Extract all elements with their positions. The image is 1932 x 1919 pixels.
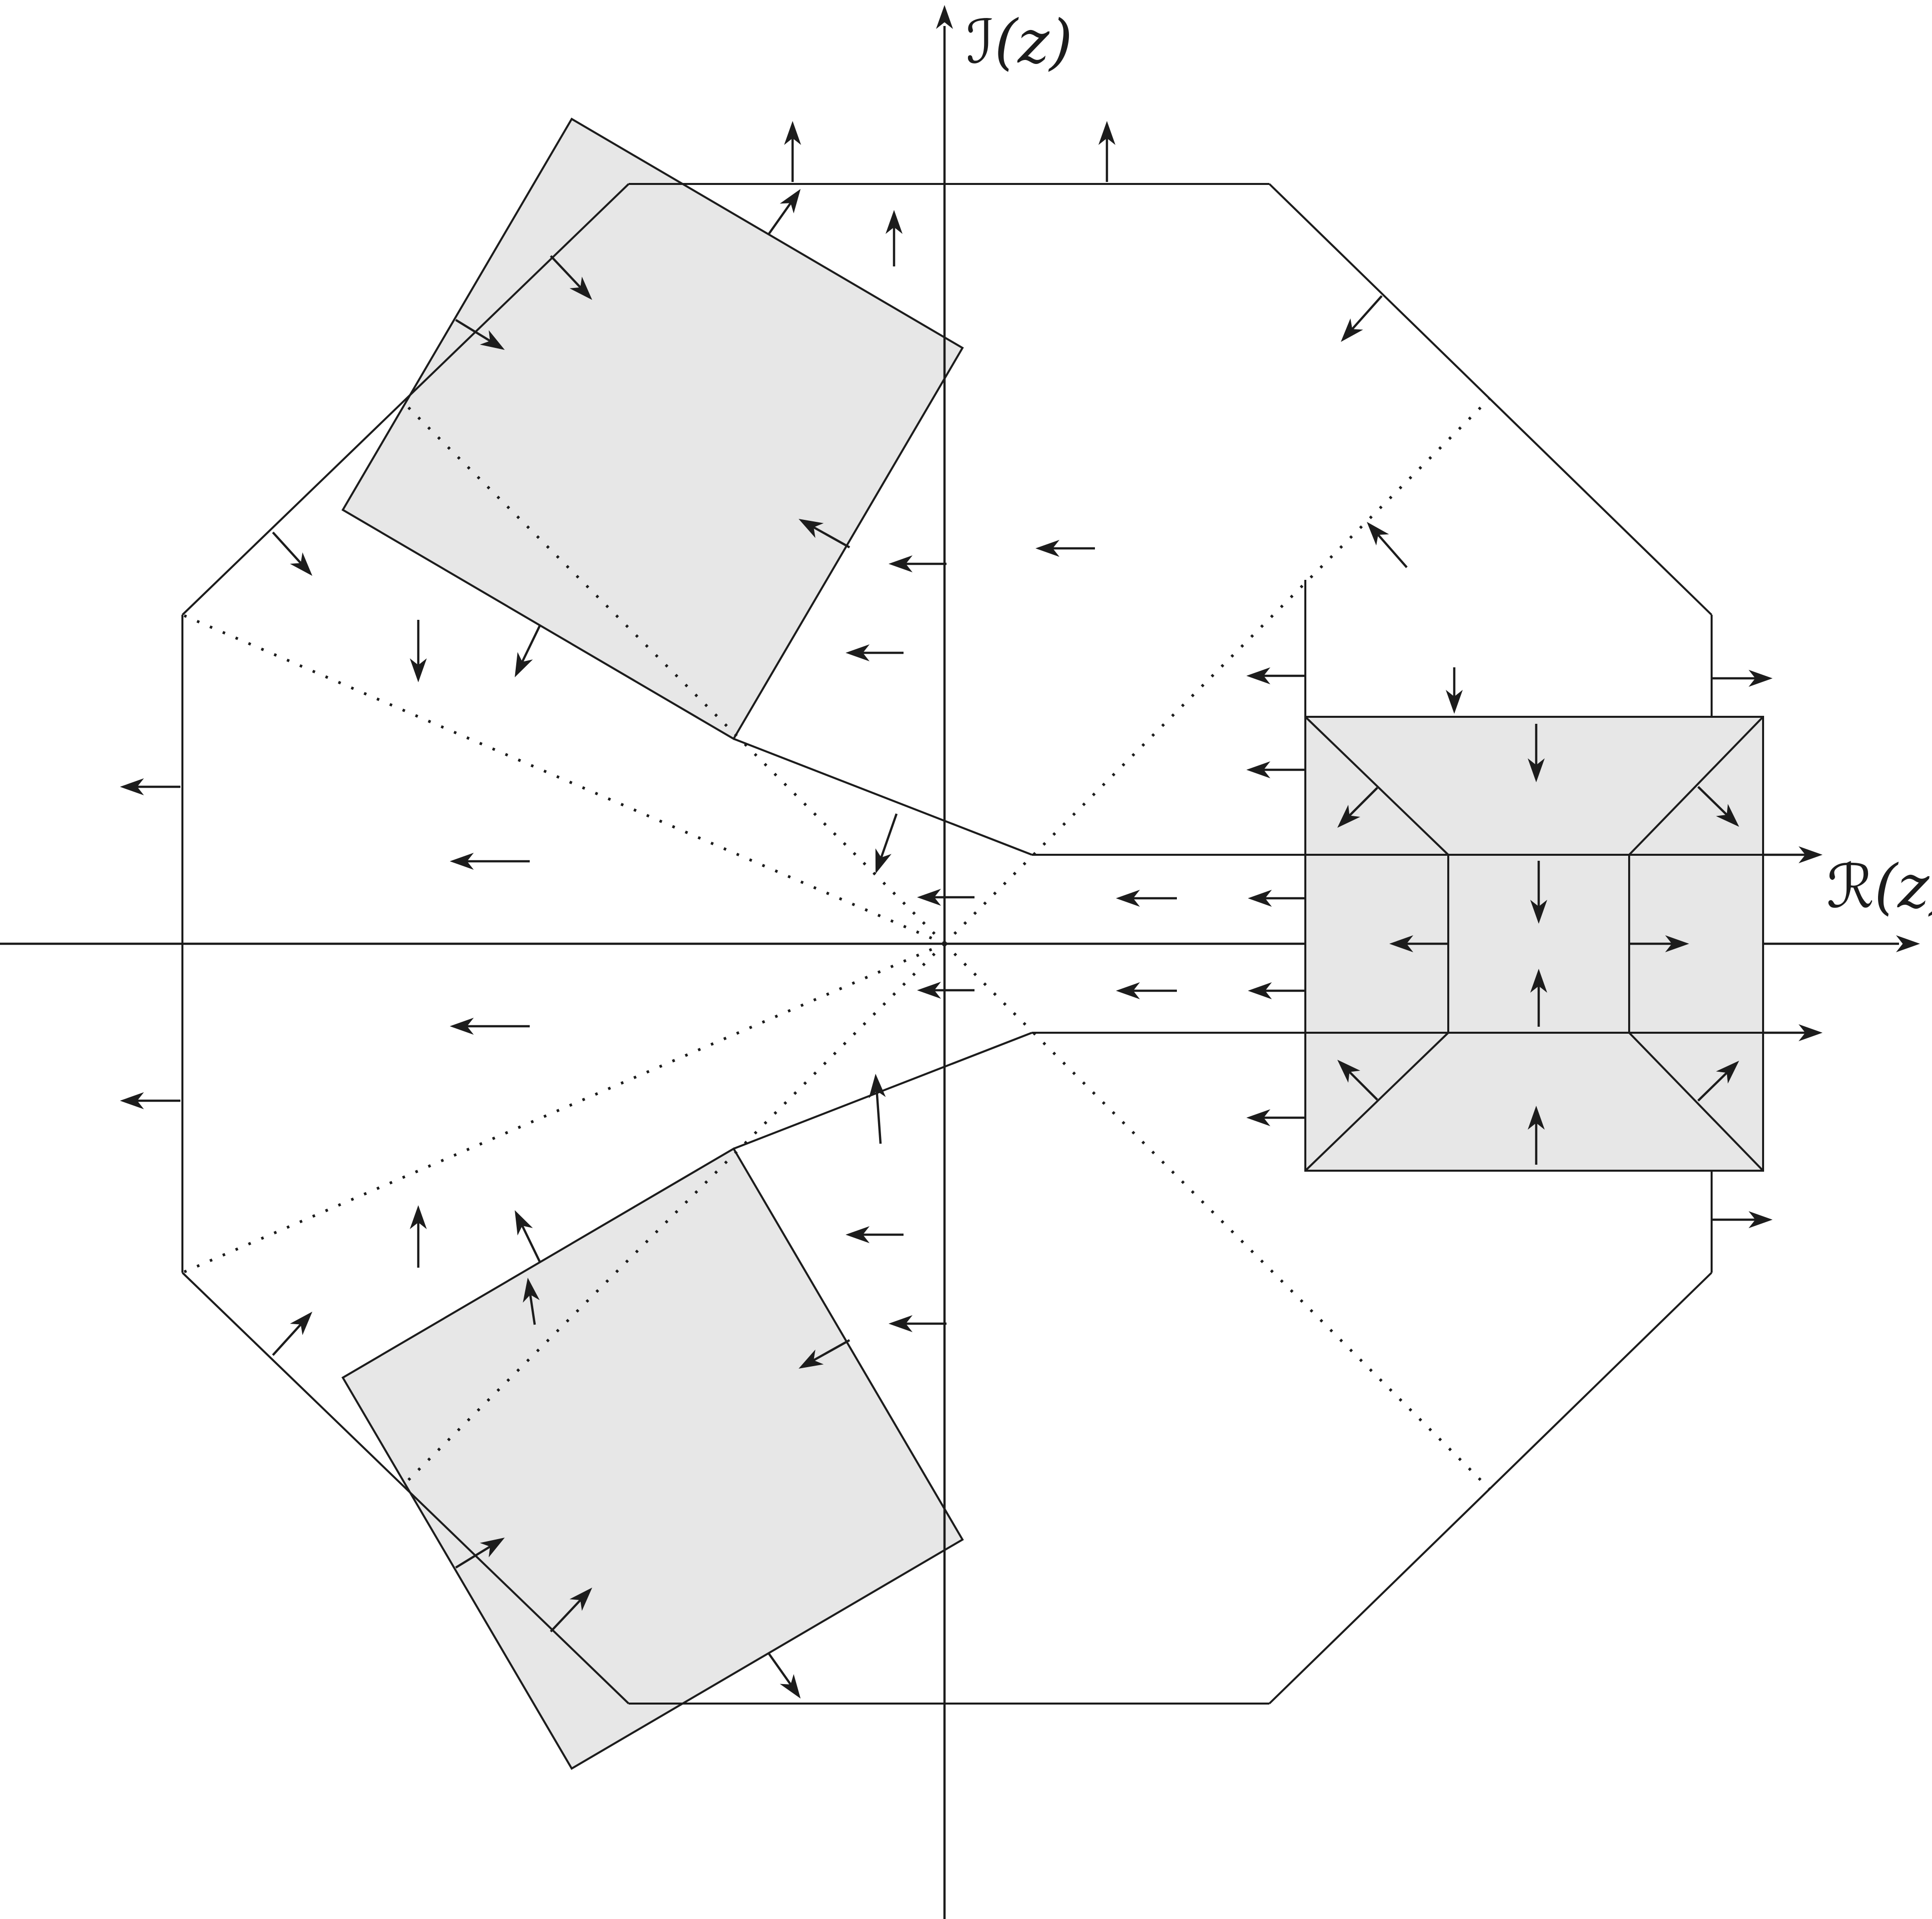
flow-arrow-27 [869,1074,886,1144]
structure-line-0 [734,739,1032,855]
flow-arrow-17-head [780,1674,801,1699]
flow-arrow-12-head [515,652,533,677]
flow-arrow-0 [120,778,180,795]
flow-arrow-17-shaft [768,1653,792,1687]
flow-arrow-5 [410,1205,427,1268]
flow-arrow-23 [1367,522,1407,567]
flow-arrow-10 [768,189,801,235]
lower-left-gray-square [343,1149,963,1769]
flow-arrow-35 [1116,982,1177,999]
flow-arrow-32 [917,889,974,906]
flow-arrow-27-shaft [877,1088,881,1144]
flow-arrow-30 [889,1315,947,1332]
flow-arrow-21 [886,210,903,266]
flow-arrow-19 [784,121,801,182]
flow-arrow-10-head [780,189,801,213]
flow-arrow-36 [1248,890,1305,907]
nested-square-layer [1305,717,1763,1171]
flow-arrow-52 [1712,1211,1773,1228]
flow-arrow-40 [1246,1109,1305,1126]
flow-arrow-20 [1098,121,1115,182]
flow-arrow-51 [1712,670,1773,687]
imaginary-axis-label: ℐ(z) [966,7,1072,77]
real-axis-label: ℛ(z) [1827,852,1932,922]
nested-square-outer [1305,717,1763,1171]
flow-arrow-13 [515,1210,540,1262]
flow-arrow-4 [410,620,427,682]
figure-canvas: ℐ(z)ℛ(z) [0,0,1932,1919]
flow-arrow-7 [273,1312,312,1355]
flow-arrow-7-shaft [273,1322,303,1355]
flow-arrow-24 [1035,540,1095,557]
flow-arrow-25 [1446,667,1463,714]
dotted-ray-3 [182,944,945,1273]
flow-arrow-38 [1246,667,1305,684]
flow-arrow-13-head [515,1210,533,1236]
flow-arrow-37 [1248,982,1305,999]
figure-svg: ℐ(z)ℛ(z) [0,0,1932,1919]
flow-arrow-26 [876,814,897,874]
flow-arrow-39 [1246,761,1305,778]
flow-arrow-13-shaft [521,1223,540,1262]
upper-left-gray-square [343,119,963,739]
flow-arrow-2 [450,853,530,870]
flow-arrow-29 [846,644,904,661]
flow-arrow-33 [917,982,974,999]
flow-arrow-31 [846,1226,904,1243]
flow-arrow-6 [273,532,312,576]
flow-arrow-23-shaft [1376,533,1407,567]
flow-arrow-28 [889,555,947,572]
flow-arrow-17 [768,1653,801,1699]
flow-arrow-22-shaft [1350,296,1382,331]
flow-arrow-12-shaft [521,626,540,664]
real-axis-arrowhead [1896,935,1920,952]
flow-arrow-54 [1763,1024,1823,1041]
flow-arrow-34 [1116,890,1177,907]
flow-arrow-6-shaft [273,532,303,565]
flow-arrow-26-shaft [881,814,897,860]
flow-arrow-12 [515,626,540,677]
imaginary-axis-arrowhead [936,5,953,29]
flow-arrow-22 [1341,296,1382,342]
flow-arrow-3 [450,1018,530,1035]
flow-arrow-53 [1763,846,1823,863]
dotted-ray-2 [182,615,945,944]
flow-arrow-10-shaft [768,201,792,235]
flow-arrow-1 [120,1092,180,1109]
